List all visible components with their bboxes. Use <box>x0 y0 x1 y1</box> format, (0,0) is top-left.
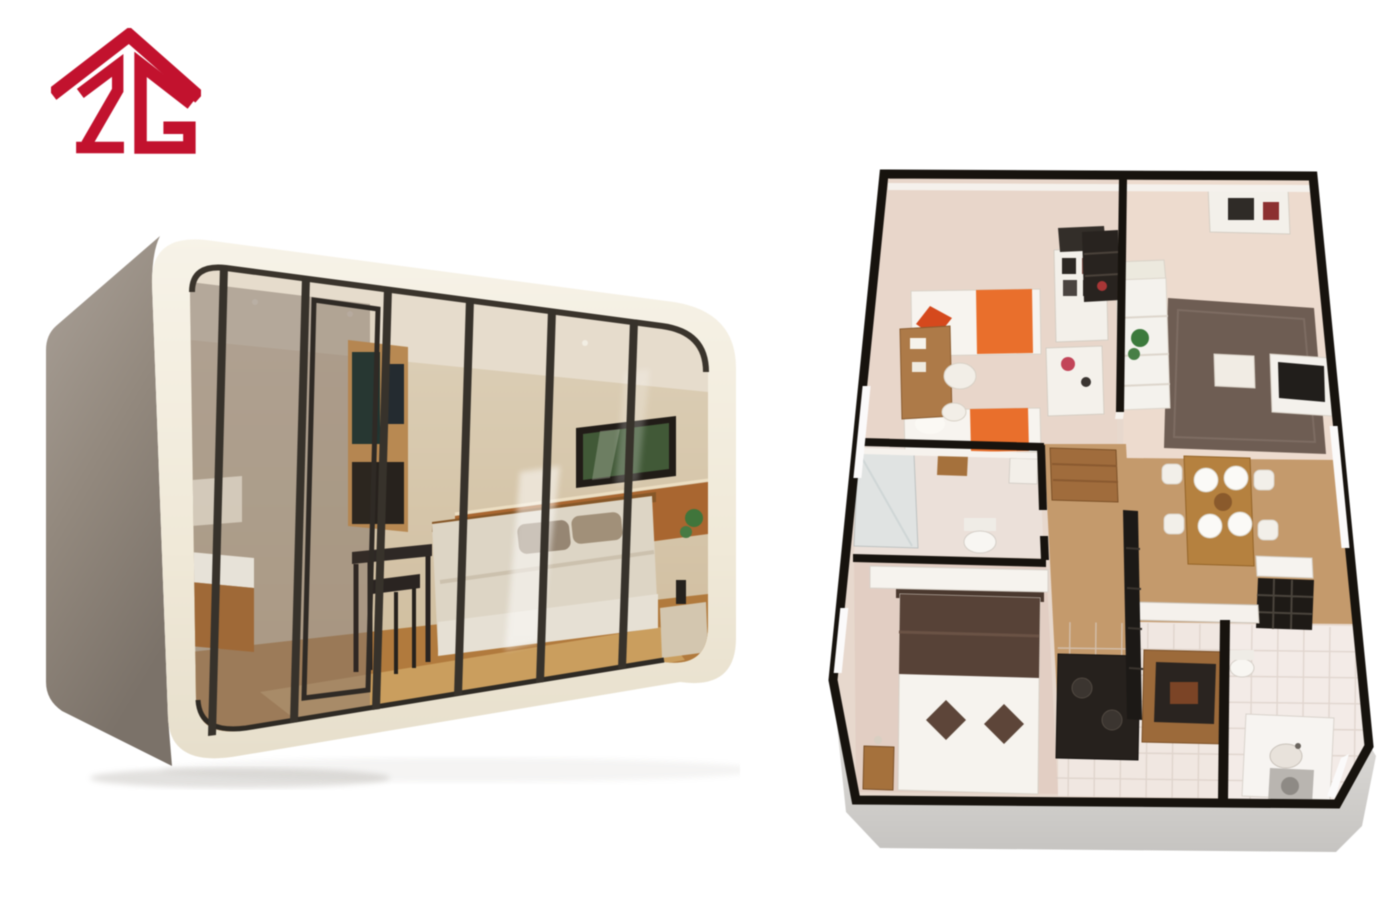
bath-toilet <box>1230 659 1254 677</box>
ensuite-toilet-tank <box>964 518 996 531</box>
wall-kitchen-bath-divider <box>1218 620 1230 802</box>
bedroom-dresser <box>1046 346 1104 416</box>
sofa-plant <box>1128 348 1140 360</box>
shelf-item <box>1097 281 1107 291</box>
dining-plate <box>1198 514 1222 538</box>
logo-text: 2G <box>0 0 1 1</box>
bath-tap <box>1295 743 1301 749</box>
wall-ensuite-east-lower <box>1040 536 1049 560</box>
capsule-side-panel <box>46 236 172 766</box>
kitchen-white-counter <box>1256 556 1313 578</box>
desk-papers <box>912 362 926 372</box>
floor-plan-graphic <box>818 158 1378 878</box>
cabinet-item <box>1263 202 1279 220</box>
dresser-item <box>1061 357 1075 371</box>
ensuite-sink <box>1009 458 1038 484</box>
bath-toilet-tank <box>1230 650 1254 660</box>
oven-window <box>1170 682 1198 704</box>
kitchen-rack-unit <box>1256 578 1314 630</box>
hall-bench <box>1050 448 1118 502</box>
dining-kitchen-counter <box>1136 602 1259 623</box>
dining-chair <box>1258 520 1278 540</box>
ensuite-toilet <box>964 531 996 553</box>
master-headboard-cabinet <box>870 566 1048 592</box>
capsule-house-render <box>40 222 740 792</box>
nightstand-lamp <box>874 736 882 744</box>
sofa-plant <box>1131 329 1149 347</box>
bath-washer-door <box>1281 777 1299 795</box>
dresser-item <box>1081 377 1091 387</box>
capsule-ground-shadow-wide <box>160 758 740 782</box>
dining-plate <box>1228 512 1252 536</box>
shelf-cubby <box>1063 280 1077 296</box>
master-nightstand <box>863 746 894 790</box>
cabinet-item <box>1228 198 1254 220</box>
dining-plate <box>1224 466 1248 490</box>
desk-chair <box>944 363 976 389</box>
capsule-house-graphic <box>40 222 740 792</box>
cooktop-burner <box>1072 678 1092 698</box>
single-bed-a-blanket <box>976 289 1033 354</box>
ensuite-vanity <box>937 454 968 476</box>
dining-plate <box>1194 468 1218 492</box>
floor-plan-render <box>818 158 1378 878</box>
page-canvas: 2G <box>0 0 1400 900</box>
dining-chair <box>1254 470 1274 490</box>
wall-divider-cap <box>1115 412 1124 419</box>
cooktop-burner <box>1102 710 1122 730</box>
dining-chair <box>1164 514 1184 534</box>
tv <box>1278 362 1325 402</box>
sliding-door-frame <box>304 300 378 698</box>
desk-stool <box>942 403 966 421</box>
desk-papers <box>910 338 926 349</box>
coffee-table <box>1214 354 1255 388</box>
hall-bookshelf <box>1082 230 1120 302</box>
dining-centerpiece <box>1214 493 1232 511</box>
shelf-cubby <box>1062 258 1076 274</box>
brand-logo <box>51 28 201 161</box>
dining-chair <box>1162 464 1182 484</box>
